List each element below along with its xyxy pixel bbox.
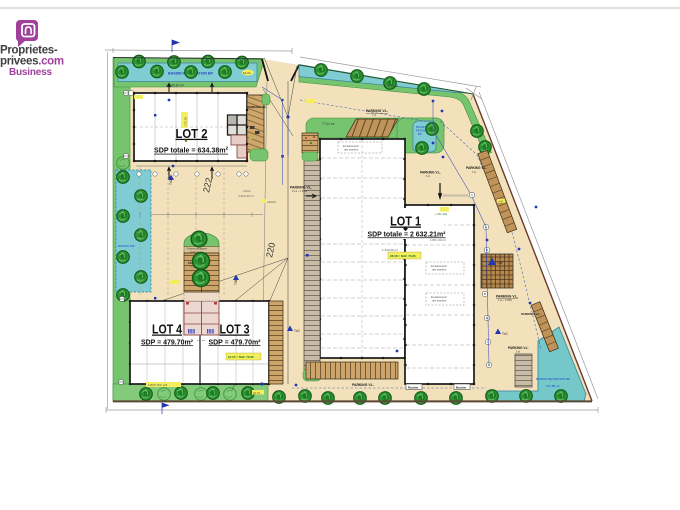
svg-text:TrA: TrA [169,179,173,185]
svg-text:Emplacement: Emplacement [431,264,447,268]
svg-text:+64,04: +64,04 [267,200,276,204]
svg-text:Business: Business [9,67,53,78]
svg-text:77,04 m²: 77,04 m² [322,122,335,126]
svg-text:3 pl: 3 pl [472,171,476,174]
svg-text:des attentes: des attentes [432,268,447,272]
svg-text:TvB: TvB [497,261,502,265]
svg-text:+NG: +NG [498,199,503,203]
svg-text:PARKING V.L.: PARKING V.L. [366,109,388,113]
svg-text:Bucher: Bucher [456,386,467,390]
svg-text:SDP totale = 634.38m²: SDP totale = 634.38m² [154,146,228,155]
svg-text:TvC: TvC [294,329,301,333]
svg-text:SDP totale = 2 632.21m²: SDP totale = 2 632.21m² [368,229,447,238]
svg-text:des attentes: des attentes [344,148,359,152]
svg-text:Emplacement: Emplacement [343,144,359,148]
svg-text:LOT 3: LOT 3 [220,323,250,337]
svg-text:7 pl: 7 pl [372,114,376,117]
svg-text:Emplacement: Emplacement [431,295,447,299]
svg-text:5 pl: 5 pl [516,351,520,354]
svg-text:-- --: -- -- [197,338,205,344]
svg-text:LOT 1: LOT 1 [390,214,421,229]
svg-text:PARKING V.L.: PARKING V.L. [247,105,267,109]
svg-text:Rucher: Rucher [408,386,419,390]
svg-text:146/87 NGF 125: 146/87 NGF 125 [148,383,168,387]
svg-text:PARKING V.L.: PARKING V.L. [290,186,312,190]
svg-text:LOT 2: LOT 2 [176,127,208,141]
svg-text:LOT 4: LOT 4 [152,323,182,337]
svg-text:4 824,45 m²: 4 824,45 m² [238,194,255,198]
svg-text:PARKING V.L.: PARKING V.L. [521,312,541,316]
svg-text:6 pl: 6 pl [426,175,430,178]
svg-text:28.08 = NGF 73.86: 28.08 = NGF 73.86 [390,254,416,258]
svg-text:21 pl + 1 PMR: 21 pl + 1 PMR [292,190,307,193]
svg-text:BP: BP [418,132,422,136]
svg-text:Ordures menageres: Ordures menageres [187,248,208,251]
svg-text:170.86: 170.86 [184,116,188,126]
svg-text:TrB: TrB [234,280,238,285]
svg-text:BASSIN RETENTION BP: BASSIN RETENTION BP [536,377,570,381]
svg-text:BASSIN: BASSIN [416,125,426,129]
svg-text:64.04: 64.04 [253,391,260,395]
svg-text:1 430,46 m²: 1 430,46 m² [382,248,398,252]
svg-text:64.04: 64.04 [243,71,251,75]
svg-text:BASSIN INF.: BASSIN INF. [118,244,135,248]
svg-text:PARKING V.L.: PARKING V.L. [496,295,518,299]
svg-text:PARKING V.L.: PARKING V.L. [466,166,487,170]
svg-text:SDP = 479.70m²: SDP = 479.70m² [209,337,262,346]
svg-text:+ NG 124: + NG 124 [435,212,447,216]
svg-text:4 pl + 1 PMR: 4 pl + 1 PMR [498,299,512,302]
svg-text:PARKING V.L.: PARKING V.L. [508,346,529,350]
svg-text:Voirie: Voirie [243,189,251,193]
svg-text:317,85 m²: 317,85 m² [546,384,560,388]
svg-text:TvC: TvC [502,332,509,336]
svg-text:£0.00 = NGF 73.86: £0.00 = NGF 73.86 [228,355,254,359]
svg-text:privees.com: privees.com [0,56,64,68]
svg-text:des attentes: des attentes [432,299,447,303]
svg-text:PARKING V.L.: PARKING V.L. [352,383,374,387]
svg-text:PARKING V.L.: PARKING V.L. [420,171,441,175]
svg-text:C38,46 m²: C38,46 m² [384,84,398,88]
svg-text:SDP = 479.70m²: SDP = 479.70m² [141,337,194,346]
